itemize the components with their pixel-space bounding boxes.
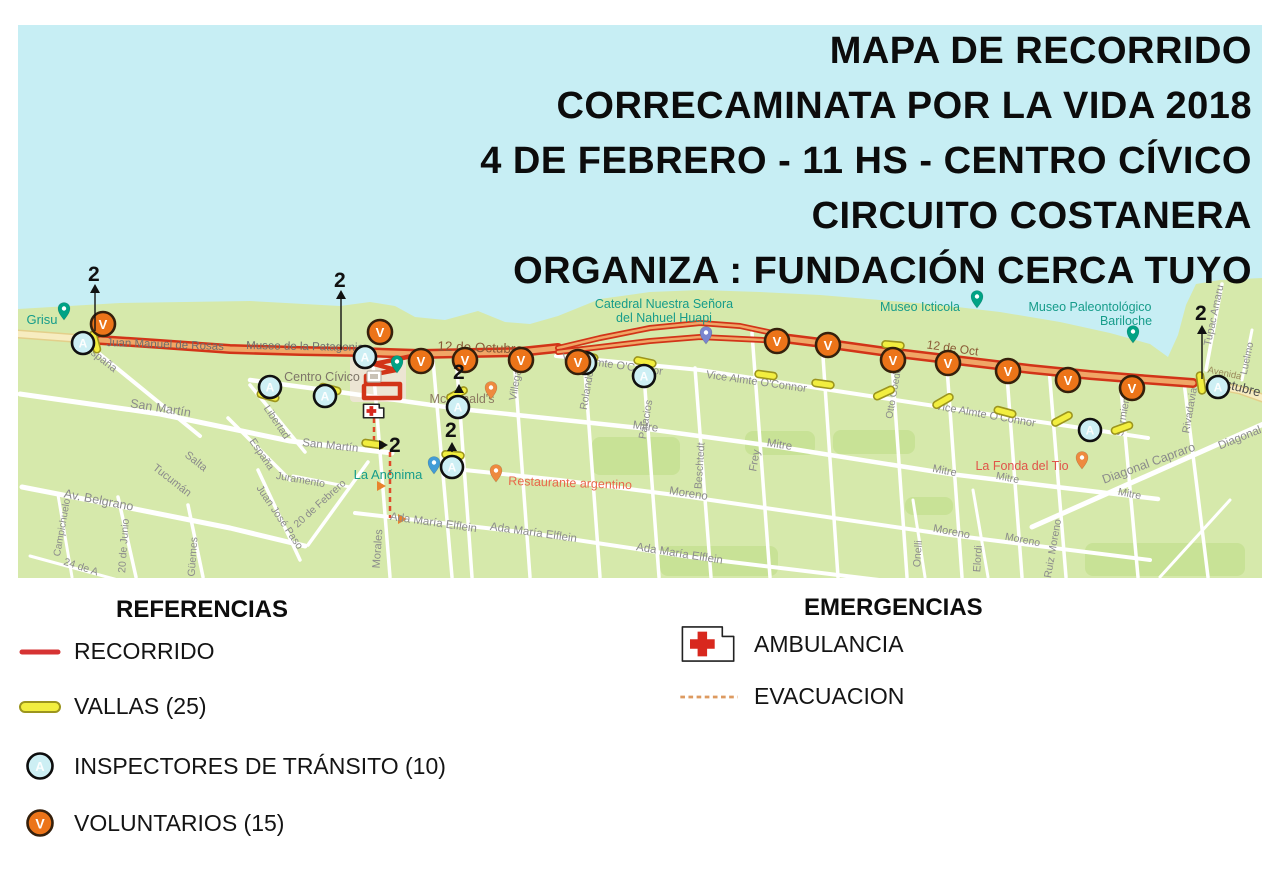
exit-number: 2 [445,419,457,442]
legend-item-route-line: RECORRIDO [16,638,215,665]
legend-item-label: VALLAS (25) [74,693,207,720]
evacuation-icon-box [678,691,740,703]
building-icon [367,371,381,382]
inspector-marker: A [1079,419,1101,441]
svg-text:V: V [1064,373,1073,388]
exit-number: 2 [334,269,346,292]
exit-number: 2 [1195,302,1207,325]
legend-item-inspector: AINSPECTORES DE TRÁNSITO (10) [16,750,446,782]
poi-label: La Fonda del Tio [975,459,1068,473]
svg-text:V: V [1004,364,1013,379]
exit-number: 2 [453,361,465,384]
exit-number: 2 [389,434,401,457]
poi-label: Bariloche [1100,314,1152,328]
poi-label: Catedral Nuestra Señora [595,297,733,311]
poster-title: MAPA DE RECORRIDO CORRECAMINATA POR LA V… [480,24,1252,299]
park-block [592,437,680,475]
svg-text:A: A [448,461,457,475]
svg-text:V: V [417,354,426,369]
volunteer-marker: V [509,348,533,372]
inspector-icon-box: A [16,750,64,782]
valla-icon [18,700,62,714]
svg-text:V: V [1128,381,1137,396]
ambulance-icon-box [678,624,740,664]
emergencias-heading: EMERGENCIAS [804,594,983,622]
volunteer-marker: V [765,329,789,353]
legend-item-label: RECORRIDO [74,638,215,665]
title-line-4: CIRCUITO COSTANERA [480,189,1252,244]
inspector-marker: A [354,346,376,368]
svg-text:V: V [574,355,583,370]
inspector-marker: A [441,456,463,478]
svg-text:V: V [35,816,45,832]
references-heading: REFERENCIAS [116,596,288,624]
valla-icon-box [16,700,64,714]
volunteer-marker: V [996,359,1020,383]
ambulance-icon [681,624,737,664]
inspector-marker: A [633,365,655,387]
poi-label: La Anónima [354,467,423,482]
svg-text:A: A [266,381,275,395]
svg-text:V: V [376,325,385,340]
ambulance-icon [682,627,733,661]
poi-label: Museo Icticola [880,300,960,314]
volunteer-icon: V [24,807,56,839]
svg-text:A: A [361,351,370,365]
inspector-marker: A [1207,376,1229,398]
street-label: Onelli [911,540,925,568]
poi-label: Grisu [26,312,57,327]
legend-item-label: AMBULANCIA [754,631,904,658]
inspector-marker: A [314,385,336,407]
volunteer-marker: V [816,333,840,357]
poi-label: Museo Paleontológico [1029,300,1152,314]
exit-number: 2 [88,263,100,286]
svg-text:V: V [889,353,898,368]
title-line-3: 4 DE FEBRERO - 11 HS - CENTRO CÍVICO [480,134,1252,189]
svg-text:A: A [1086,424,1095,438]
route-line-icon-box [16,646,64,658]
volunteer-marker: V [1056,368,1080,392]
title-line-1: MAPA DE RECORRIDO [480,24,1252,79]
inspector-marker: A [259,376,281,398]
inspector-marker: A [447,396,469,418]
volunteer-marker: V [936,351,960,375]
legend-item-valla: VALLAS (25) [16,693,207,720]
volunteer-marker: V [566,350,590,374]
volunteer-icon-box: V [16,807,64,839]
poi-label: del Nahuel Huapi [616,311,712,325]
svg-text:V: V [944,356,953,371]
volunteer-marker: V [409,349,433,373]
svg-text:A: A [640,370,649,384]
title-line-2: CORRECAMINATA POR LA VIDA 2018 [480,79,1252,134]
svg-text:V: V [824,338,833,353]
svg-text:V: V [99,317,108,332]
svg-text:V: V [773,334,782,349]
volunteer-marker: V [368,320,392,344]
svg-text:A: A [35,759,45,774]
legend-item-ambulance: AMBULANCIA [678,624,904,664]
svg-text:A: A [79,337,88,351]
street-label: Elordi [971,545,985,573]
inspector-marker: A [72,332,94,354]
legend-item-label: INSPECTORES DE TRÁNSITO (10) [74,753,446,780]
evacuation-icon [678,691,740,703]
poi-label: Centro Cívico [284,370,360,384]
legend-item-volunteer: VVOLUNTARIOS (15) [16,807,284,839]
route-line-icon [18,646,62,658]
svg-text:V: V [517,353,526,368]
legend-item-label: EVACUACION [754,683,904,710]
inspector-icon: A [24,750,56,782]
legend-item-label: VOLUNTARIOS (15) [74,810,284,837]
poster-page: Juan Manuel de RosasMuseo de la Patagoni… [0,0,1280,870]
svg-text:A: A [321,390,330,404]
volunteer-marker: V [1120,376,1144,400]
legend-item-evacuation: EVACUACION [678,683,904,710]
park-block [833,430,915,454]
svg-text:A: A [1214,381,1223,395]
volunteer-marker: V [881,348,905,372]
title-line-5: ORGANIZA : FUNDACIÓN CERCA TUYO [480,244,1252,299]
street-label: Museo de la Patagonia [246,340,364,354]
svg-text:A: A [454,401,463,415]
